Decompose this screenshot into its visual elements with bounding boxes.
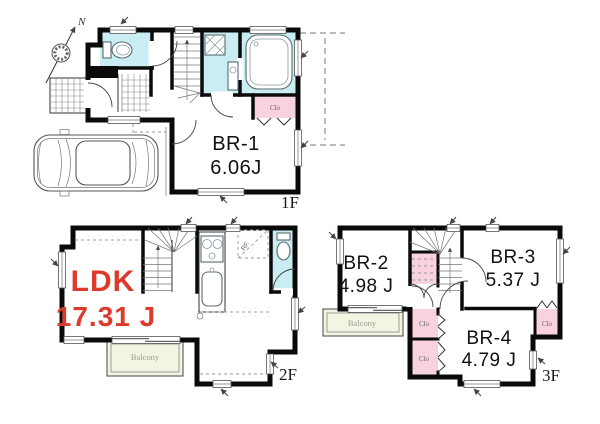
room-label-br2: BR-2: [343, 253, 388, 274]
balcony-label-3f: Balcony: [348, 318, 377, 328]
balcony-slider-3f: [348, 306, 402, 313]
vanity-icon-1f: [228, 62, 238, 90]
room-area-br2: 4.98 J: [339, 276, 394, 297]
car-mirror: [60, 130, 69, 135]
closet-label-3f-2: Clo: [419, 355, 430, 363]
washing-machine-icon: [205, 35, 225, 55]
entrance-porch-tiles: [50, 78, 88, 113]
toilet-icon-2f: [277, 233, 290, 260]
compass: N: [46, 16, 86, 83]
closet-label-1f: Clo: [270, 104, 281, 112]
floor-label-1f: 1F: [281, 193, 299, 212]
floor-plan-drawing: N: [0, 0, 600, 424]
carport: [34, 118, 166, 196]
car-roof: [76, 141, 130, 185]
floor-plan-sheet: N: [0, 0, 600, 424]
floor-label-3f: 3F: [542, 366, 560, 385]
entrance-door-gap: [84, 80, 92, 108]
toilet-icon-1f: [103, 42, 132, 58]
room-area-br4: 4.79 J: [462, 350, 517, 371]
balcony-label-2f: Balcony: [131, 352, 160, 362]
room-label-br1: BR-1: [212, 133, 260, 155]
room-label-br4: BR-4: [466, 328, 511, 349]
car-icon: [34, 130, 158, 197]
room-label-ldk: LDK: [71, 265, 136, 298]
floor-plan-1f: Clo BR-1 6.06J 1F: [50, 17, 345, 212]
floor-plan-2f: RF.: [51, 217, 305, 396]
under-stair-closet: [410, 252, 438, 284]
north-label: N: [77, 16, 86, 28]
car-rear-window: [132, 142, 136, 184]
kitchen-sink-icon: [202, 272, 222, 306]
car-mirror: [60, 191, 69, 196]
room-area-ldk: 17.31 J: [56, 301, 156, 332]
room-label-br3: BR-3: [490, 247, 535, 268]
car-windshield: [66, 139, 71, 187]
balcony-slider-2f: [112, 337, 180, 344]
closet-label-3f-1: Clo: [419, 320, 430, 328]
closet-label-3f-3: Clo: [542, 320, 553, 328]
setback-dashed-outline: [300, 33, 345, 145]
room-area-br3: 5.37 J: [486, 270, 541, 291]
room-area-br1: 6.06J: [210, 157, 261, 179]
car-hood: [39, 142, 42, 184]
bathtub-icon: [246, 35, 292, 89]
floor-label-2f: 2F: [279, 365, 297, 384]
floor-plan-3f: BR-2 4.98 J BR-3 5.37 J BR-4 4.79 J Clo …: [323, 217, 570, 396]
